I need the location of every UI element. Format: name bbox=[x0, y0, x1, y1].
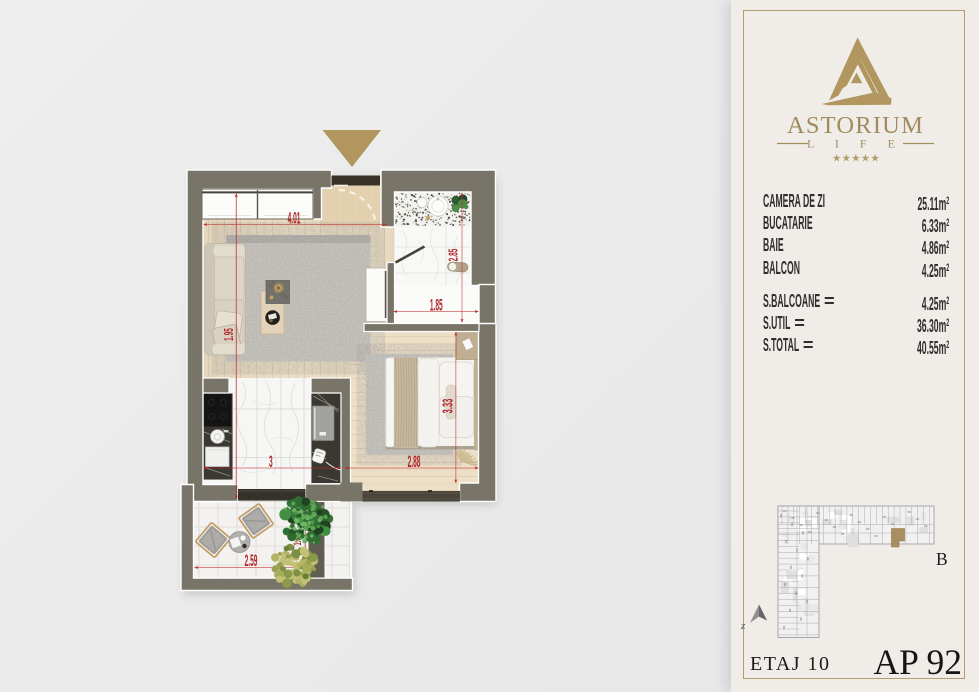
svg-text:2.88: 2.88 bbox=[408, 453, 421, 471]
svg-text:3.33: 3.33 bbox=[441, 399, 456, 414]
svg-text:3: 3 bbox=[0, 0, 2, 4]
svg-text:1.85: 1.85 bbox=[430, 296, 443, 314]
svg-text:1.95: 1.95 bbox=[223, 328, 237, 341]
svg-text:3: 3 bbox=[269, 452, 273, 470]
svg-text:2.85: 2.85 bbox=[447, 248, 461, 261]
svg-text:B: B bbox=[936, 549, 948, 569]
svg-text:z: z bbox=[740, 620, 746, 632]
svg-text:2.59: 2.59 bbox=[245, 551, 258, 569]
svg-text:4.01: 4.01 bbox=[288, 209, 301, 227]
